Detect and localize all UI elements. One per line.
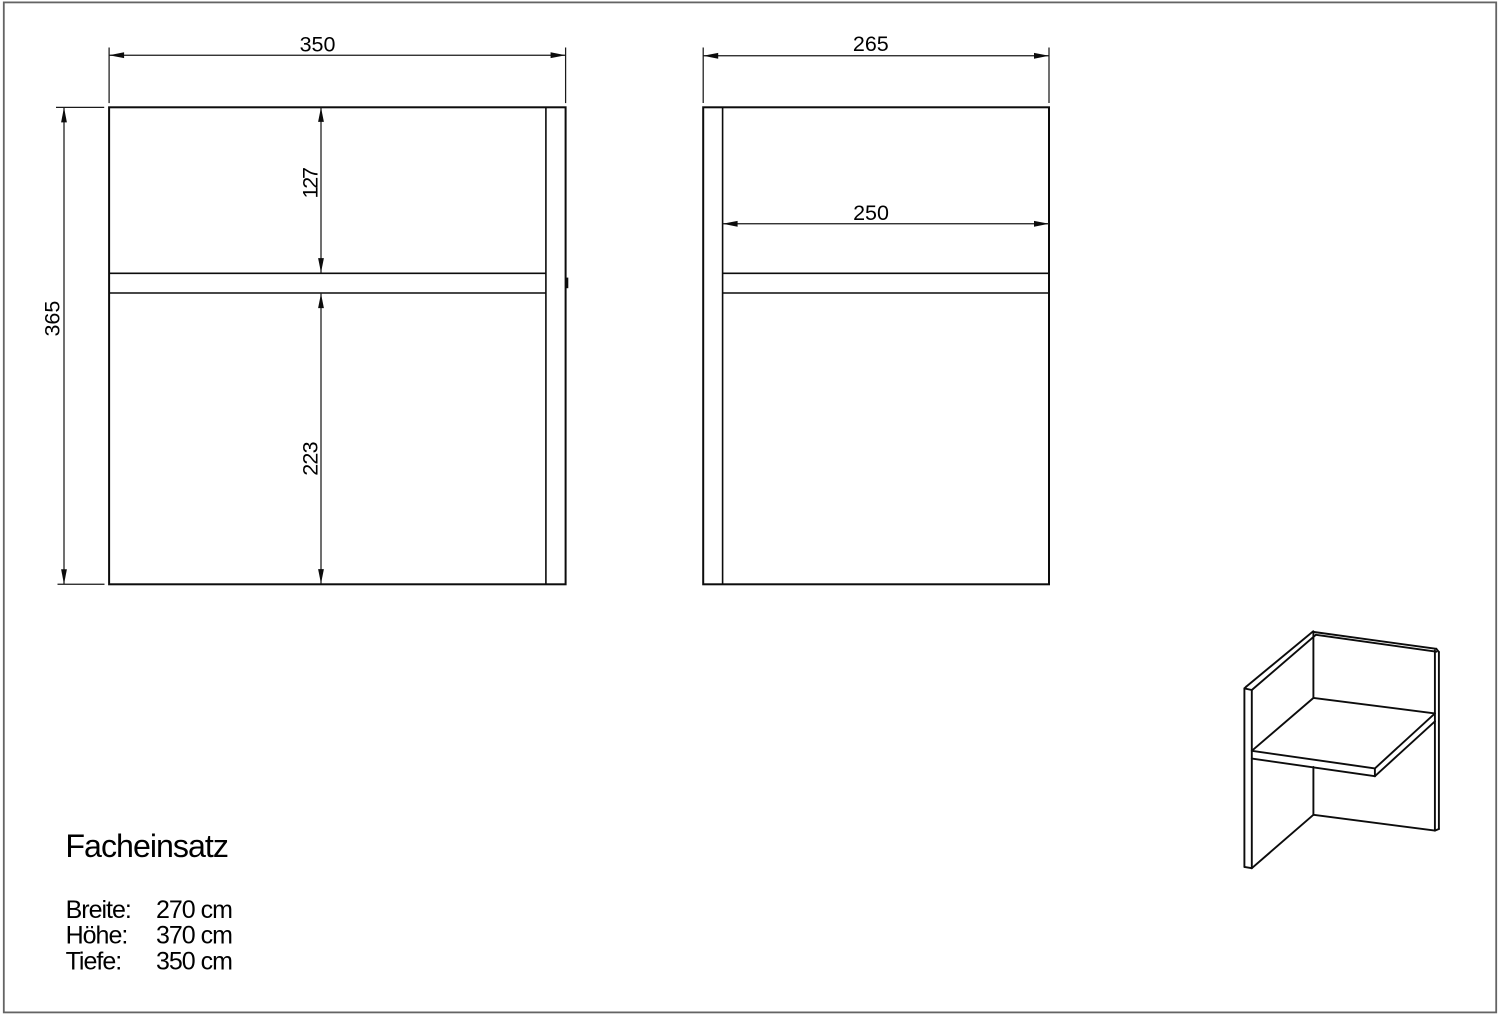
svg-text:250: 250 [853,201,889,225]
svg-text:365: 365 [41,301,65,337]
svg-text:Tiefe:: Tiefe: [66,947,122,975]
svg-text:Facheinsatz: Facheinsatz [65,828,228,864]
svg-text:127: 127 [299,168,323,199]
svg-text:223: 223 [299,441,323,475]
svg-text:265: 265 [853,32,889,56]
svg-text:Höhe:: Höhe: [66,922,128,950]
svg-text:270 cm: 270 cm [156,896,232,924]
svg-text:350 cm: 350 cm [156,947,232,975]
svg-text:Breite:: Breite: [66,896,131,924]
svg-text:370 cm: 370 cm [156,922,232,950]
svg-text:350: 350 [300,33,336,57]
